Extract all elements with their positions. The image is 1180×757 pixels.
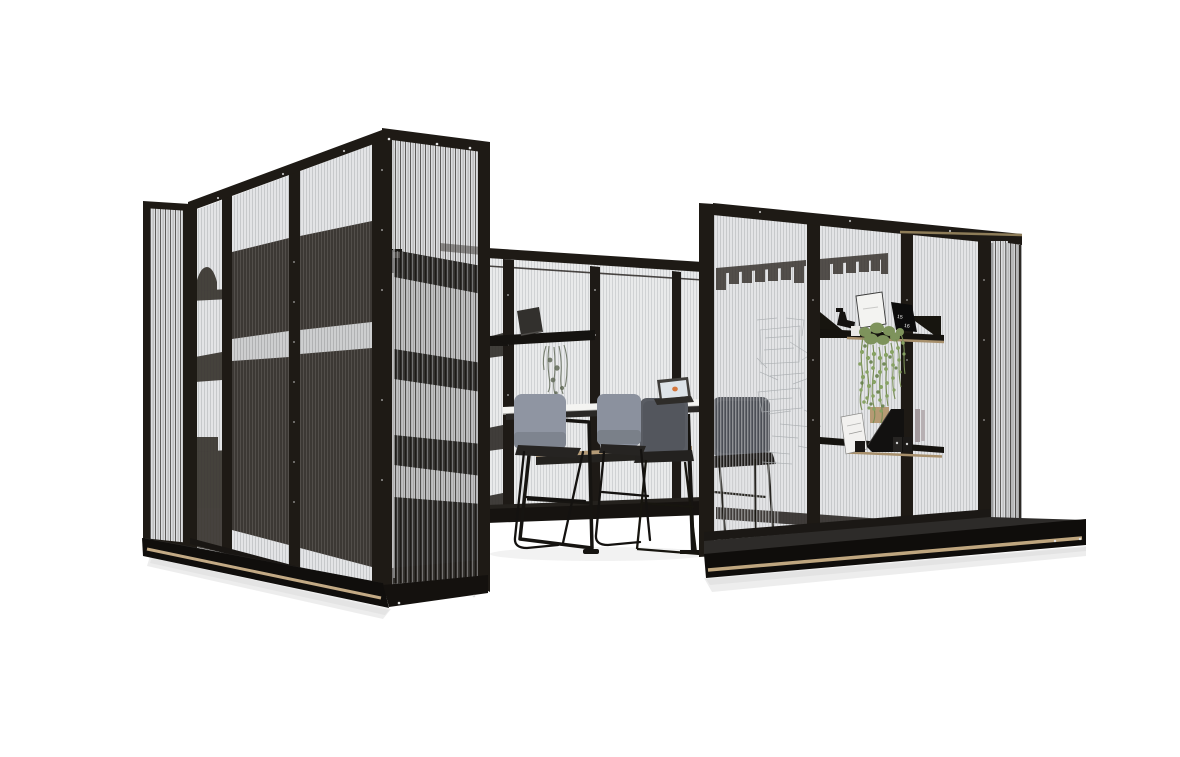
svg-text:16: 16 <box>904 323 910 330</box>
svg-text:15: 15 <box>897 314 903 321</box>
